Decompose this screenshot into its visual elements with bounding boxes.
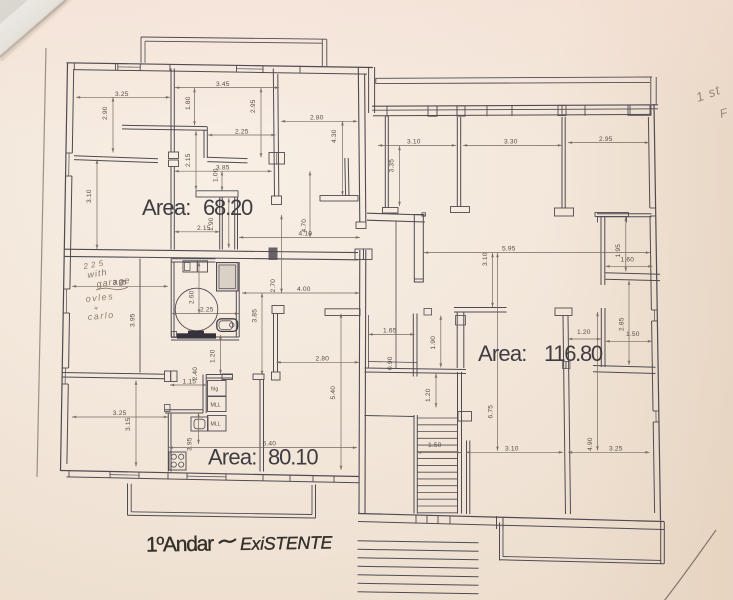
svg-text:3.25: 3.25 [115, 91, 129, 98]
svg-text:2.85: 2.85 [619, 317, 626, 331]
svg-text:4.90: 4.90 [587, 437, 594, 451]
svg-text:2.95: 2.95 [250, 99, 257, 113]
svg-text:2.80: 2.80 [316, 355, 330, 362]
svg-text:1ºAndar: 1ºAndar [146, 532, 215, 556]
svg-text:2.90: 2.90 [102, 106, 109, 120]
svg-text:1.20: 1.20 [425, 388, 432, 402]
svg-text:2.25: 2.25 [235, 129, 249, 136]
svg-text:3.10: 3.10 [407, 139, 421, 146]
svg-text:3.30: 3.30 [504, 139, 518, 146]
svg-text:80.10: 80.10 [268, 445, 318, 470]
svg-text:3.25: 3.25 [113, 280, 127, 287]
svg-text:1.50: 1.50 [428, 442, 442, 449]
svg-text:1.20: 1.20 [577, 329, 591, 336]
svg-text:3.85: 3.85 [252, 309, 259, 323]
svg-text:3.10: 3.10 [482, 252, 489, 266]
svg-text:1.00: 1.00 [213, 168, 220, 182]
svg-text:Area:: Area: [208, 445, 257, 470]
svg-text:3.15: 3.15 [125, 417, 132, 431]
svg-text:Area:: Area: [142, 195, 191, 220]
svg-text:MLL: MLL [211, 422, 221, 428]
svg-text:3.45: 3.45 [216, 81, 230, 88]
svg-text:1.80: 1.80 [185, 96, 192, 110]
svg-text:116.80: 116.80 [544, 341, 603, 366]
svg-text:6.75: 6.75 [488, 405, 495, 419]
svg-text:MLL: MLL [211, 403, 221, 409]
svg-text:3.25: 3.25 [609, 445, 623, 452]
svg-text:68.20: 68.20 [203, 195, 253, 220]
svg-text:2.25: 2.25 [200, 307, 214, 314]
svg-text:2.95: 2.95 [599, 136, 613, 143]
svg-text:3.10: 3.10 [505, 445, 519, 452]
svg-text:5.95: 5.95 [502, 245, 516, 252]
svg-text:4.30: 4.30 [331, 129, 338, 143]
svg-text:3.95: 3.95 [187, 437, 194, 451]
svg-text:ExiSTENTE: ExiSTENTE [240, 532, 334, 554]
svg-text:2.40: 2.40 [192, 367, 199, 381]
svg-text:3.10: 3.10 [86, 189, 93, 203]
svg-text:1.95: 1.95 [615, 244, 622, 258]
svg-text:1.60: 1.60 [621, 257, 635, 264]
svg-text:5.40: 5.40 [330, 386, 337, 400]
svg-text:Area:: Area: [478, 341, 527, 366]
svg-text:0.90: 0.90 [387, 356, 394, 370]
svg-text:2.80: 2.80 [310, 115, 324, 122]
svg-text:4.70: 4.70 [301, 219, 308, 233]
svg-text:1.90: 1.90 [430, 336, 437, 350]
svg-text:1.20: 1.20 [210, 349, 217, 363]
svg-text:2.60: 2.60 [189, 290, 196, 304]
svg-text:4.00: 4.00 [297, 286, 311, 293]
svg-text:frig: frig [211, 387, 218, 393]
svg-text:2.70: 2.70 [270, 279, 277, 293]
svg-text:3.95: 3.95 [130, 313, 137, 327]
svg-text:2.15: 2.15 [185, 153, 192, 167]
svg-text:3.35: 3.35 [389, 159, 396, 173]
svg-text:1.50: 1.50 [626, 331, 640, 338]
svg-text:3.25: 3.25 [113, 410, 127, 417]
svg-text:1.65: 1.65 [383, 327, 397, 334]
